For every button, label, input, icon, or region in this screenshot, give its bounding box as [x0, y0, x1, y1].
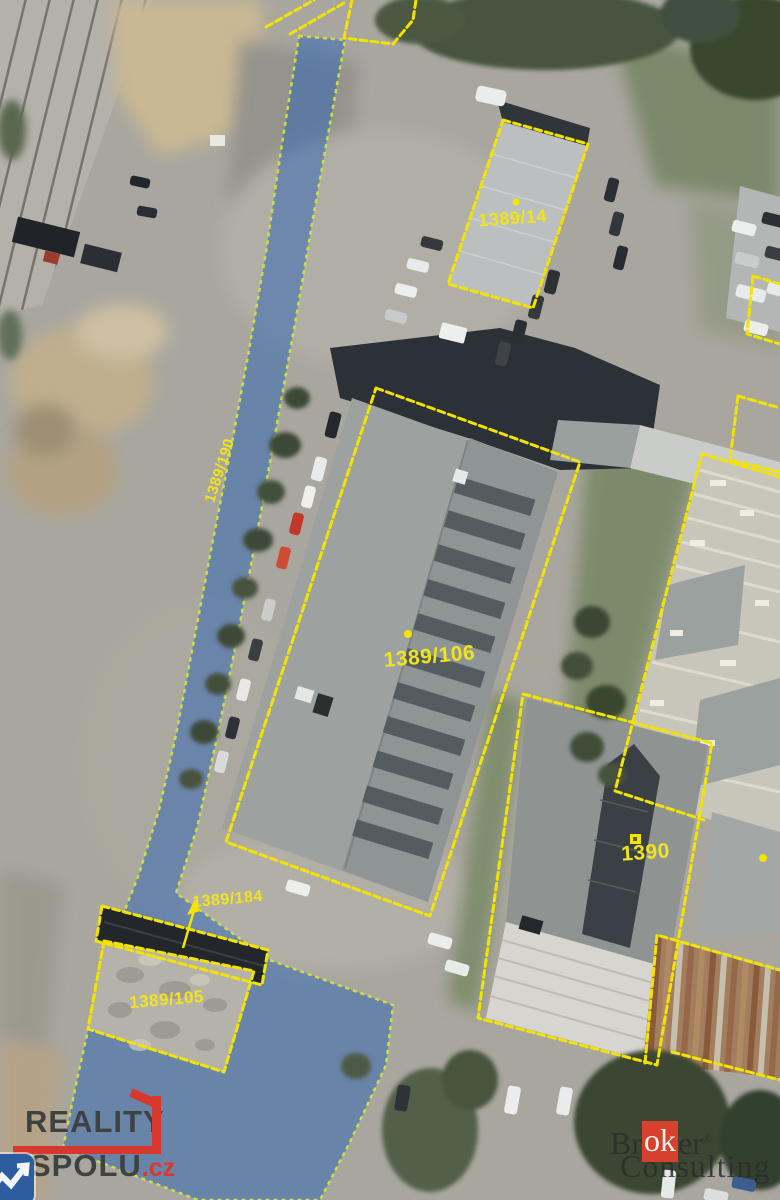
building-right-mid [700, 812, 780, 938]
label-1390: 1390 [620, 839, 670, 865]
aerial-photo: 1389/14 1389/190 1389/106 1390 1389/184 … [0, 0, 780, 1200]
aerial-map: 1389/14 1389/190 1389/106 1390 1389/184 … [0, 0, 780, 1200]
